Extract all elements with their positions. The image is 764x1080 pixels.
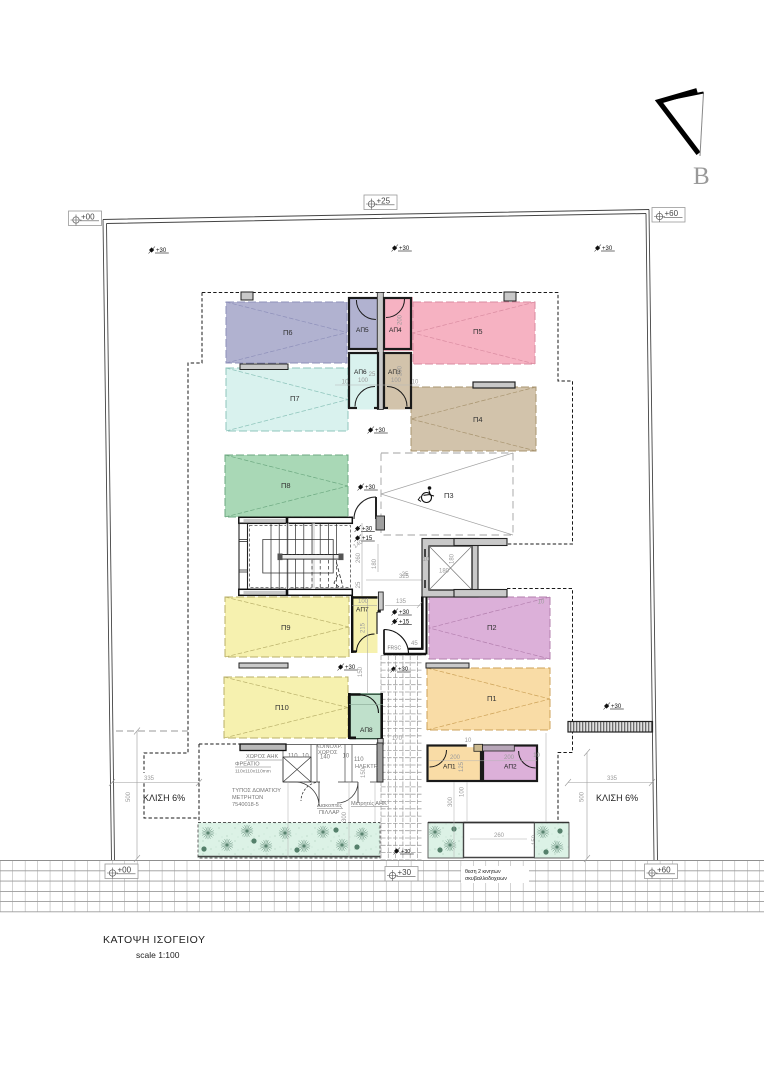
svg-text:200: 200 — [450, 755, 461, 761]
svg-text:100: 100 — [460, 786, 466, 797]
svg-text:335: 335 — [607, 776, 618, 782]
svg-text:+30: +30 — [398, 868, 412, 877]
svg-text:215: 215 — [361, 622, 367, 633]
svg-text:100: 100 — [358, 378, 369, 384]
svg-text:ΑΠ1: ΑΠ1 — [443, 764, 456, 771]
svg-text:200: 200 — [504, 755, 515, 761]
svg-text:Π7: Π7 — [290, 394, 300, 403]
svg-text:25: 25 — [356, 581, 362, 588]
svg-text:Π3: Π3 — [444, 491, 454, 500]
svg-text:ΠΙΛΛΑΡ: ΠΙΛΛΑΡ — [319, 810, 340, 816]
svg-text:200: 200 — [398, 314, 404, 325]
svg-text:500: 500 — [580, 791, 586, 802]
svg-text:θεση 2 κινητων: θεση 2 κινητων — [465, 869, 501, 875]
svg-text:300: 300 — [342, 811, 348, 822]
svg-text:10: 10 — [343, 754, 350, 760]
svg-text:ΑΠ4: ΑΠ4 — [389, 327, 402, 334]
svg-text:135: 135 — [396, 599, 407, 605]
svg-text:ΚΛΙΣΗ 6%: ΚΛΙΣΗ 6% — [143, 793, 185, 803]
svg-text:+00: +00 — [81, 213, 95, 222]
svg-text:10: 10 — [533, 753, 540, 759]
svg-text:ΜΕΤΡΗΤΩΝ: ΜΕΤΡΗΤΩΝ — [232, 795, 263, 801]
svg-text:500: 500 — [126, 791, 132, 802]
svg-text:ΑΠ7: ΑΠ7 — [356, 607, 369, 614]
svg-text:Διακοπτες: Διακοπτες — [317, 803, 343, 809]
svg-text:Π9: Π9 — [281, 623, 291, 632]
svg-text:B: B — [693, 163, 710, 190]
svg-text:FRSC: FRSC — [388, 645, 402, 651]
svg-text:Μετρητές ΑΗΚ: Μετρητές ΑΗΚ — [351, 800, 387, 807]
svg-text:10: 10 — [538, 600, 545, 606]
svg-text:100: 100 — [358, 599, 369, 605]
svg-text:100: 100 — [391, 378, 402, 384]
svg-text:+00: +00 — [118, 866, 132, 875]
svg-text:+25: +25 — [377, 197, 391, 206]
svg-text:110: 110 — [354, 757, 364, 763]
svg-text:335: 335 — [144, 776, 155, 782]
svg-text:ΚΛΙΣΗ 6%: ΚΛΙΣΗ 6% — [596, 793, 638, 803]
svg-text:ΑΠ2: ΑΠ2 — [504, 764, 517, 771]
svg-text:Π6: Π6 — [283, 328, 293, 337]
svg-text:110: 110 — [288, 754, 298, 760]
svg-text:scale 1:100: scale 1:100 — [136, 950, 180, 960]
svg-text:σκυβαλλοδοχειων: σκυβαλλοδοχειων — [465, 876, 507, 882]
svg-text:Π10: Π10 — [275, 703, 289, 712]
svg-text:+60: +60 — [657, 866, 671, 875]
svg-text:200: 200 — [398, 365, 404, 376]
svg-text:Π4: Π4 — [473, 415, 483, 424]
svg-text:260: 260 — [356, 552, 362, 563]
svg-text:150: 150 — [361, 767, 367, 778]
svg-text:ΑΠ8: ΑΠ8 — [360, 727, 373, 734]
svg-text:Π2: Π2 — [487, 623, 497, 632]
svg-text:Π5: Π5 — [473, 327, 483, 336]
svg-text:7540018-5: 7540018-5 — [232, 802, 259, 808]
svg-text:150: 150 — [358, 666, 364, 677]
svg-text:140: 140 — [320, 755, 331, 761]
svg-text:110x110x110mm: 110x110x110mm — [235, 769, 271, 775]
svg-text:ΑΠ6: ΑΠ6 — [354, 369, 367, 376]
svg-text:ΤΥΠΟΣ ΔΩΜΑΤΙΟΥ: ΤΥΠΟΣ ΔΩΜΑΤΙΟΥ — [232, 788, 281, 794]
svg-text:ΚΑΤΟΨΗ ΙΣΟΓΕΙΟΥ: ΚΑΤΟΨΗ ΙΣΟΓΕΙΟΥ — [103, 934, 206, 946]
svg-text:300: 300 — [448, 796, 454, 807]
svg-text:180: 180 — [372, 558, 378, 569]
svg-text:45: 45 — [411, 641, 418, 647]
svg-text:ΦΡΕΑΤΙΟ: ΦΡΕΑΤΙΟ — [235, 762, 260, 768]
svg-text:10: 10 — [302, 754, 309, 760]
svg-text:10: 10 — [423, 557, 430, 563]
svg-text:180: 180 — [450, 553, 456, 564]
svg-text:Π8: Π8 — [281, 481, 291, 490]
svg-text:10: 10 — [465, 738, 472, 744]
svg-text:125: 125 — [459, 761, 465, 772]
svg-text:+60: +60 — [665, 209, 679, 218]
svg-text:ΑΠ5: ΑΠ5 — [356, 327, 369, 334]
svg-text:10: 10 — [342, 380, 349, 386]
svg-text:Π1: Π1 — [487, 694, 497, 703]
svg-text:25: 25 — [369, 372, 376, 378]
svg-text:ΧΩΡΟΣ ΑΗΚ: ΧΩΡΟΣ ΑΗΚ — [246, 754, 278, 760]
svg-text:10: 10 — [412, 380, 419, 386]
svg-text:180: 180 — [439, 569, 450, 575]
svg-text:170: 170 — [392, 736, 403, 742]
svg-text:260: 260 — [494, 833, 505, 839]
svg-text:25: 25 — [402, 572, 409, 578]
